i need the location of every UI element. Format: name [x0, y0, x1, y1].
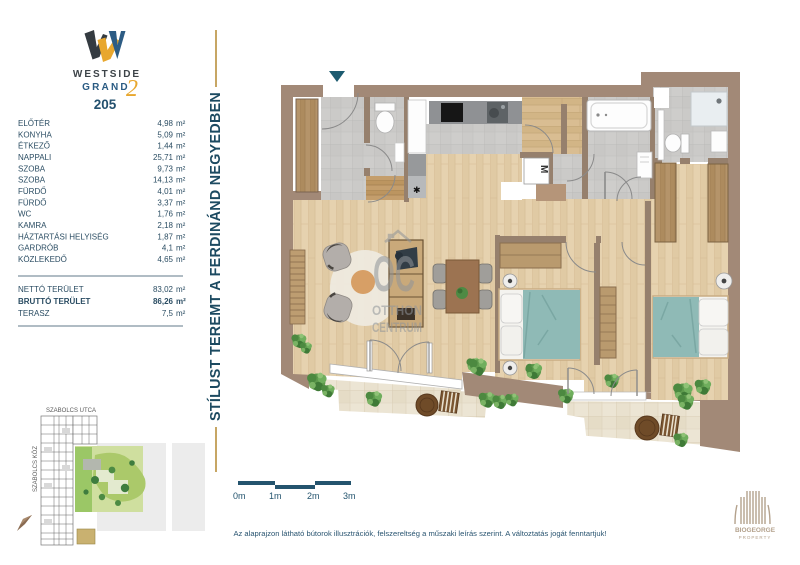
svg-text:0m: 0m	[233, 491, 246, 501]
svg-text:1,87: 1,87	[157, 232, 173, 241]
svg-text:SZABOLCS KÖZ: SZABOLCS KÖZ	[32, 446, 39, 492]
svg-text:m²: m²	[176, 309, 186, 318]
svg-text:1,44: 1,44	[157, 142, 173, 151]
svg-text:m²: m²	[176, 142, 186, 151]
svg-text:m²: m²	[176, 130, 186, 139]
svg-text:NAPPALI: NAPPALI	[18, 153, 51, 162]
svg-text:SZOBA: SZOBA	[18, 164, 46, 173]
svg-text:m²: m²	[176, 176, 186, 185]
svg-text:4,01: 4,01	[157, 187, 173, 196]
svg-text:KÖZLEKEDŐ: KÖZLEKEDŐ	[18, 255, 67, 264]
svg-text:1m: 1m	[269, 491, 282, 501]
svg-text:M: M	[538, 165, 549, 173]
svg-text:BRUTTÓ TERÜLET: BRUTTÓ TERÜLET	[18, 297, 91, 306]
svg-text:GRAND: GRAND	[82, 82, 130, 93]
svg-text:5,09: 5,09	[157, 130, 173, 139]
svg-text:STÍLUST TEREMT A FERDINÁND NEG: STÍLUST TEREMT A FERDINÁND NEGYEDBEN	[207, 92, 224, 421]
svg-text:OC: OC	[373, 246, 415, 302]
svg-text:2: 2	[126, 76, 138, 102]
svg-text:14,13: 14,13	[153, 176, 174, 185]
svg-text:m²: m²	[176, 255, 186, 264]
svg-text:3m: 3m	[343, 491, 356, 501]
svg-text:BIOGEORGE: BIOGEORGE	[735, 527, 776, 534]
svg-text:FÜRDŐ: FÜRDŐ	[18, 187, 46, 196]
svg-text:TERASZ: TERASZ	[18, 309, 50, 318]
svg-text:FÜRDŐ: FÜRDŐ	[18, 198, 46, 207]
svg-text:WC: WC	[18, 210, 32, 219]
svg-text:NETTÓ TERÜLET: NETTÓ TERÜLET	[18, 285, 84, 294]
svg-text:m²: m²	[176, 297, 186, 306]
svg-text:m²: m²	[176, 164, 186, 173]
svg-text:m²: m²	[176, 232, 186, 241]
svg-text:CENTRUM: CENTRUM	[372, 320, 422, 335]
svg-text:7,5: 7,5	[162, 309, 174, 318]
svg-text:205: 205	[94, 97, 117, 112]
svg-text:ÉTKEZŐ: ÉTKEZŐ	[18, 142, 50, 151]
svg-text:2,18: 2,18	[157, 221, 173, 230]
svg-text:m²: m²	[176, 221, 186, 230]
svg-text:86,26: 86,26	[153, 297, 174, 306]
svg-text:4,98: 4,98	[157, 119, 173, 128]
svg-text:KAMRA: KAMRA	[18, 221, 47, 230]
svg-text:4,65: 4,65	[157, 255, 173, 264]
svg-text:m²: m²	[176, 153, 186, 162]
svg-text:m²: m²	[176, 187, 186, 196]
svg-text:m²: m²	[176, 285, 186, 294]
svg-text:3,37: 3,37	[157, 198, 173, 207]
svg-text:Az alaprajzon látható bútorok: Az alaprajzon látható bútorok illusztrác…	[233, 529, 606, 538]
svg-text:SZOBA: SZOBA	[18, 176, 46, 185]
svg-text:4,1: 4,1	[162, 244, 174, 253]
svg-text:9,73: 9,73	[157, 164, 173, 173]
svg-text:83,02: 83,02	[153, 285, 174, 294]
svg-text:HÁZTARTÁSI HELYISÉG: HÁZTARTÁSI HELYISÉG	[18, 232, 109, 241]
svg-text:2m: 2m	[307, 491, 320, 501]
svg-text:25,71: 25,71	[153, 153, 174, 162]
svg-text:m²: m²	[176, 244, 186, 253]
svg-text:1,76: 1,76	[157, 210, 173, 219]
svg-text:OTTHON: OTTHON	[372, 303, 422, 318]
svg-text:GARDRÓB: GARDRÓB	[18, 244, 58, 253]
svg-text:PROPERTY: PROPERTY	[739, 535, 772, 540]
svg-text:m²: m²	[176, 119, 186, 128]
svg-text:✱: ✱	[413, 185, 421, 195]
svg-text:SZABOLCS UTCA: SZABOLCS UTCA	[46, 408, 96, 414]
svg-text:KONYHA: KONYHA	[18, 130, 52, 139]
svg-text:m²: m²	[176, 210, 186, 219]
svg-text:m²: m²	[176, 198, 186, 207]
svg-text:ELŐTÉR: ELŐTÉR	[18, 119, 50, 128]
